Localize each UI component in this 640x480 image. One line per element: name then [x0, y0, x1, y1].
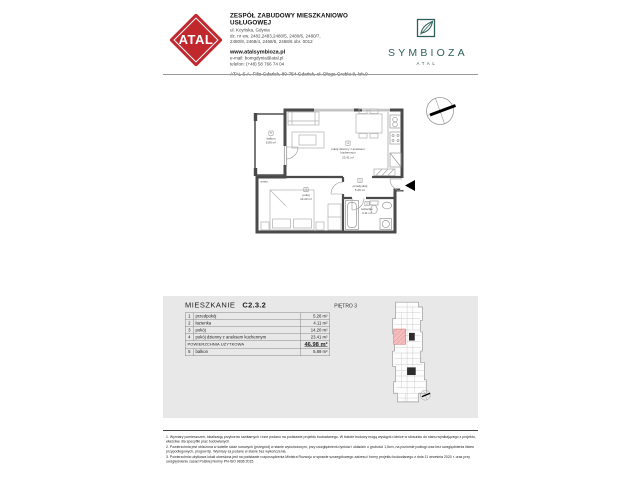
footnote-3: 3. Powierzchnia użytkowa lokali określon… [166, 455, 478, 464]
footnotes-block: 1. Wymiary pomieszczeń, lokalizację przy… [166, 435, 478, 469]
project-title: ZESPÓŁ ZABUDOWY MIESZKANIOWO USŁUGOWEJ [230, 12, 390, 26]
apartment-label: MIESZKANIE [185, 301, 235, 310]
total-label: POWIERZCHNIA UŻYTKOWA [185, 341, 300, 349]
footnote-1: 1. Wymiary pomieszczeń, lokalizację przy… [166, 435, 478, 444]
phone-line: telefon: (+48) 58 766 74 04 [230, 61, 390, 67]
room-name: balkon [193, 349, 300, 356]
table-row: 1 przedpokój 5.26 m² [185, 313, 330, 320]
compass-icon [427, 98, 456, 125]
symbioza-logo: SYMBIOZA ATAL [388, 17, 466, 66]
room-area: 5.89 m² [300, 349, 330, 356]
table-title-row: MIESZKANIE C2.3.2 PIĘTRO 3 [185, 301, 357, 310]
room-area: 5.26 m² [300, 313, 330, 320]
entrance-arrow-icon [405, 180, 415, 191]
svg-text:23.41 m²: 23.41 m² [342, 155, 354, 159]
table-row: 4 pokój dzienny z aneksem kuchennym 23.4… [185, 334, 330, 341]
row-number: 3 [185, 327, 193, 334]
room-name: przedpokój [193, 313, 300, 320]
building-outline [393, 302, 427, 402]
row-number: 1 [185, 313, 193, 320]
room-area: 4.11 m² [300, 320, 330, 327]
header-divider [163, 74, 478, 75]
svg-text:5.26 m²: 5.26 m² [355, 188, 365, 192]
svg-text:4.11 m²: 4.11 m² [362, 211, 372, 215]
room-area: 14.20 m² [300, 327, 330, 334]
total-row: POWIERZCHNIA UŻYTKOWA 46.98 m² [185, 341, 330, 349]
room-name: pokój dzienny z aneksem kuchennym [193, 334, 300, 341]
apartment-table-block: MIESZKANIE C2.3.2 PIĘTRO 3 1 przedpokój … [185, 301, 357, 365]
wardrobe-hatch [374, 169, 395, 176]
room-area: 23.41 m² [300, 334, 330, 341]
table-row: 5 balkon 5.89 m² [185, 349, 330, 356]
address-line-3: 2480/8, 2468/4, 2468/5, 2468/6 obr. 0012 [230, 39, 390, 45]
row-number: 5 [185, 349, 193, 356]
total-area: 46.98 m² [300, 341, 330, 349]
brand-name: SYMBIOZA [388, 47, 466, 59]
row-number: 4 [185, 334, 193, 341]
brand-subname: ATAL [388, 61, 466, 66]
room-areas-table: 1 przedpokój 5.26 m² 2 łazienka 4.11 m² … [185, 313, 330, 356]
niche-label: wnęka [260, 180, 268, 184]
atal-logo-text: ATAL [169, 32, 223, 47]
leaf-icon [416, 17, 438, 39]
building-key-plan [386, 298, 432, 408]
floor-plan: 5 balkon 5.89 m² 4 pokój dzienny z aneks… [224, 92, 468, 242]
room-name: łazienka [193, 320, 300, 327]
footer-divider [163, 430, 478, 431]
table-row: 3 pokój 14.20 m² [185, 327, 330, 334]
room-name: pokój [193, 327, 300, 334]
header-text-block: ZESPÓŁ ZABUDOWY MIESZKANIOWO USŁUGOWEJ u… [230, 12, 390, 82]
svg-text:14.20 m²: 14.20 m² [300, 197, 312, 201]
unit-highlight [394, 329, 406, 344]
svg-text:5.89 m²: 5.89 m² [266, 141, 276, 145]
project-address: ul. Kcyńska, Gdynia dz. nr ew. 2482,2483… [230, 28, 390, 46]
table-row: 2 łazienka 4.11 m² [185, 320, 330, 327]
apartment-number: C2.3.2 [242, 301, 266, 310]
atal-logo: ATAL [169, 13, 223, 67]
row-number: 2 [185, 320, 193, 327]
floor-label: PIĘTRO 3 [334, 304, 357, 310]
svg-text:kuchennym: kuchennym [340, 151, 356, 155]
footnote-2: 2. Powierzchnia jest obliczona w świetle… [166, 445, 478, 454]
